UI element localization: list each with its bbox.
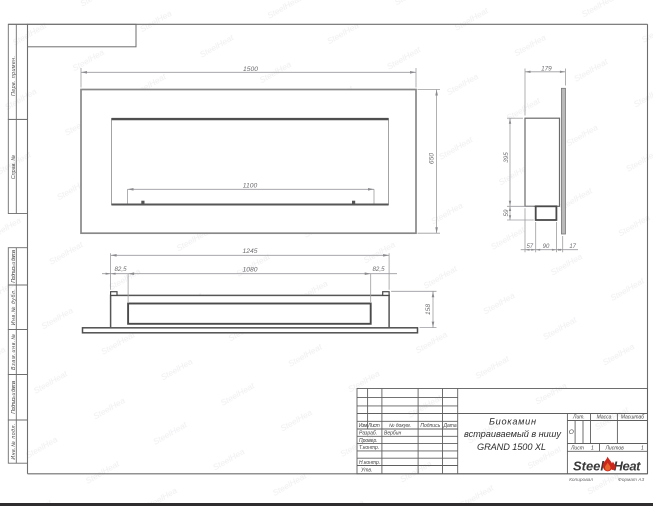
svg-text:Перв. примен.: Перв. примен.	[11, 56, 17, 96]
svg-text:№ докум.: № докум.	[389, 423, 411, 429]
svg-text:Подпись и дата: Подпись и дата	[11, 381, 17, 414]
svg-text:Подпись: Подпись	[420, 423, 440, 429]
svg-text:Т.контр.: Т.контр.	[359, 445, 379, 451]
svg-text:57: 57	[526, 244, 533, 250]
svg-text:17: 17	[569, 244, 576, 250]
svg-text:Heat: Heat	[614, 458, 642, 473]
svg-text:Лит.: Лит.	[572, 414, 585, 420]
svg-text:1245: 1245	[243, 248, 258, 255]
svg-text:Инв.№ дубл.: Инв.№ дубл.	[11, 289, 17, 325]
svg-text:Steel: Steel	[573, 458, 604, 473]
svg-text:Утв.: Утв.	[361, 468, 372, 474]
svg-text:Взам.инв.№: Взам.инв.№	[11, 334, 17, 370]
svg-text:GRAND 1500 XL: GRAND 1500 XL	[477, 442, 546, 452]
svg-text:Масштаб: Масштаб	[621, 414, 645, 420]
svg-text:1500: 1500	[243, 66, 258, 73]
svg-text:Биокамин: Биокамин	[489, 416, 536, 426]
svg-text:179: 179	[541, 65, 552, 72]
svg-text:650: 650	[429, 153, 436, 164]
svg-text:1: 1	[591, 446, 594, 452]
svg-text:встраиваемый в нишу: встраиваемый в нишу	[464, 429, 562, 439]
svg-text:82,5: 82,5	[372, 266, 385, 273]
svg-text:Вербин: Вербин	[384, 431, 401, 437]
svg-text:Разраб.: Разраб.	[359, 431, 377, 437]
svg-text:82,5: 82,5	[114, 266, 127, 273]
svg-text:Подпись и дата: Подпись и дата	[11, 250, 17, 283]
svg-text:Н.контр.: Н.контр.	[359, 460, 380, 466]
svg-text:Копировал: Копировал	[569, 477, 593, 483]
svg-text:1: 1	[641, 446, 644, 452]
svg-text:158: 158	[425, 304, 432, 315]
svg-text:1080: 1080	[243, 267, 258, 274]
svg-text:Дата: Дата	[442, 423, 456, 429]
svg-text:Листов: Листов	[605, 446, 625, 452]
svg-text:90: 90	[543, 244, 550, 250]
svg-text:Справ. №: Справ. №	[11, 155, 17, 180]
svg-text:59: 59	[503, 209, 510, 217]
svg-text:О: О	[569, 429, 574, 436]
svg-text:Изм.Лист: Изм.Лист	[359, 423, 380, 429]
svg-text:395: 395	[503, 152, 510, 163]
svg-text:Инв.№ подл.: Инв.№ подл.	[11, 424, 17, 460]
svg-text:1100: 1100	[243, 182, 258, 189]
svg-text:Формат A3: Формат A3	[618, 477, 645, 483]
svg-text:Провер.: Провер.	[359, 438, 378, 444]
svg-text:Лист: Лист	[570, 446, 584, 452]
svg-text:Масса: Масса	[597, 414, 612, 420]
